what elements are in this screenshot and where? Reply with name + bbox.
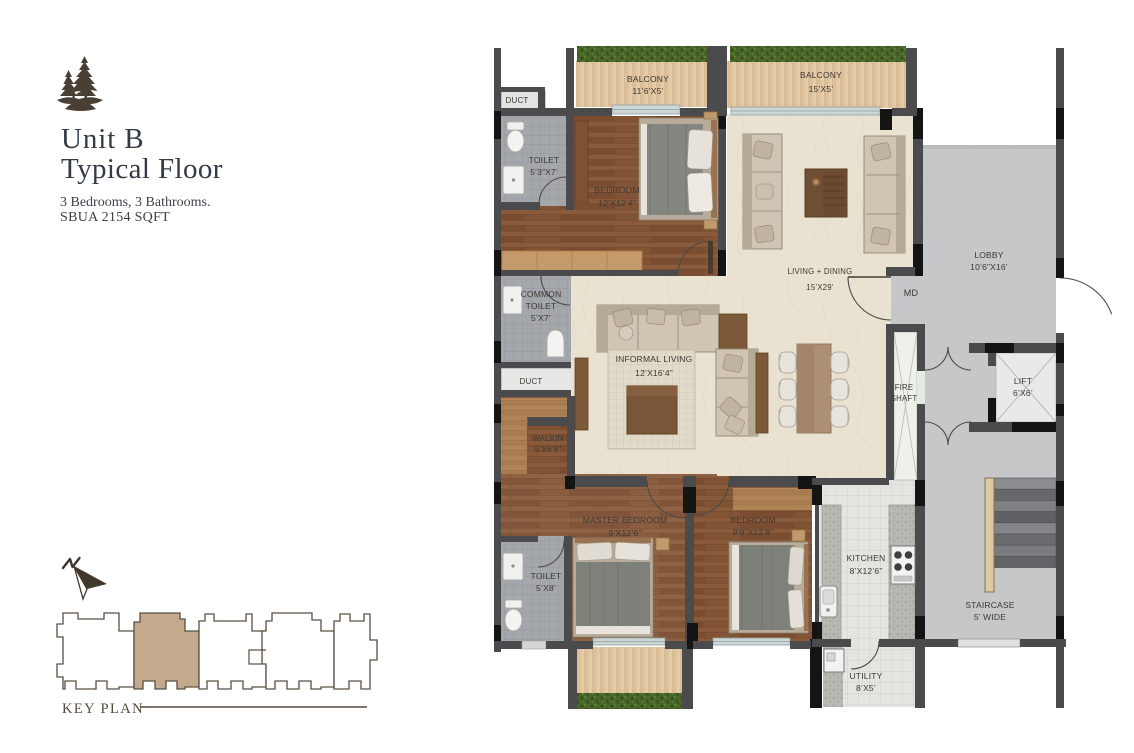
svg-text:LIFT: LIFT xyxy=(1014,376,1032,386)
svg-text:STAIRCASE: STAIRCASE xyxy=(965,600,1014,610)
svg-text:KITCHEN: KITCHEN xyxy=(847,553,886,563)
svg-text:12’X12’4”: 12’X12’4” xyxy=(598,198,636,208)
svg-text:6’X6’: 6’X6’ xyxy=(1013,388,1033,398)
svg-text:TOILET: TOILET xyxy=(531,571,562,581)
svg-text:8’X12’6”: 8’X12’6” xyxy=(850,566,883,576)
svg-text:TOILET: TOILET xyxy=(526,301,557,311)
svg-text:LOBBY: LOBBY xyxy=(974,250,1003,260)
svg-text:11’6’X5’: 11’6’X5’ xyxy=(632,86,663,96)
svg-text:12’X16’4”: 12’X16’4” xyxy=(635,368,673,378)
svg-text:5’X8’: 5’X8’ xyxy=(536,583,556,593)
svg-text:9’X12’6”: 9’X12’6” xyxy=(609,528,642,538)
svg-text:Typical Floor: Typical Floor xyxy=(61,153,223,185)
svg-text:5’X6’9”: 5’X6’9” xyxy=(535,445,561,454)
svg-text:COMMON: COMMON xyxy=(521,289,562,299)
svg-text:MASTER BEDROOM: MASTER BEDROOM xyxy=(583,515,668,525)
svg-text:BEDROOM: BEDROOM xyxy=(730,515,775,525)
svg-text:BALCONY: BALCONY xyxy=(800,70,842,80)
svg-text:5’X7’: 5’X7’ xyxy=(531,313,551,323)
svg-text:INFORMAL LIVING: INFORMAL LIVING xyxy=(616,354,693,364)
svg-text:LIVING + DINING: LIVING + DINING xyxy=(788,267,853,276)
svg-text:3 Bedrooms, 3 Bathrooms.: 3 Bedrooms, 3 Bathrooms. xyxy=(60,195,211,210)
svg-text:BALCONY: BALCONY xyxy=(627,74,669,84)
svg-text:DUCT: DUCT xyxy=(519,377,542,386)
svg-text:WALKIN: WALKIN xyxy=(532,434,564,443)
svg-text:SBUA 2154 SQFT: SBUA 2154 SQFT xyxy=(60,210,170,225)
svg-text:MD: MD xyxy=(904,288,919,298)
svg-text:BEDROOM: BEDROOM xyxy=(594,185,639,195)
svg-text:KEY PLAN: KEY PLAN xyxy=(62,701,144,717)
svg-text:9’9”X12’8”: 9’9”X12’8” xyxy=(733,527,774,537)
svg-text:DUCT: DUCT xyxy=(505,96,528,105)
svg-text:SHAFT: SHAFT xyxy=(891,394,918,403)
svg-text:5’ WIDE: 5’ WIDE xyxy=(974,612,1006,622)
svg-text:5’3”X7’: 5’3”X7’ xyxy=(530,167,558,177)
svg-text:TOILET: TOILET xyxy=(529,155,560,165)
svg-text:8’X5’: 8’X5’ xyxy=(856,683,876,693)
svg-text:10’6”X16’: 10’6”X16’ xyxy=(970,262,1008,272)
svg-text:Unit B: Unit B xyxy=(61,123,145,155)
svg-text:UTILITY: UTILITY xyxy=(849,671,882,681)
svg-text:15’X5’: 15’X5’ xyxy=(809,84,834,94)
svg-text:FIRE: FIRE xyxy=(895,383,914,392)
svg-text:15’X29’: 15’X29’ xyxy=(806,283,833,292)
